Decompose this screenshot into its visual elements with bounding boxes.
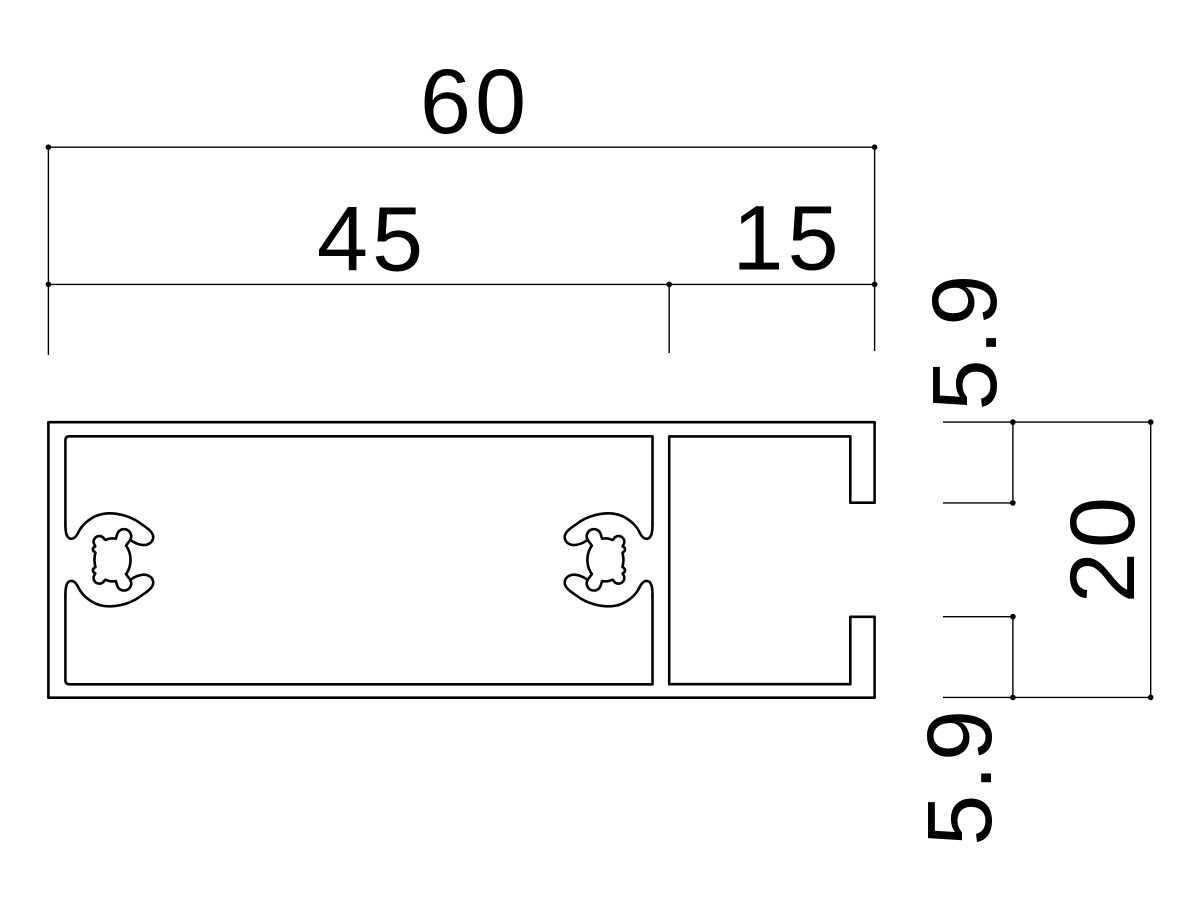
svg-text:20: 20	[1052, 493, 1154, 603]
svg-text:15: 15	[732, 188, 842, 290]
svg-text:45: 45	[317, 189, 427, 291]
svg-text:60: 60	[420, 51, 530, 153]
svg-text:5.9: 5.9	[914, 271, 1016, 411]
svg-text:5.9: 5.9	[909, 706, 1011, 846]
